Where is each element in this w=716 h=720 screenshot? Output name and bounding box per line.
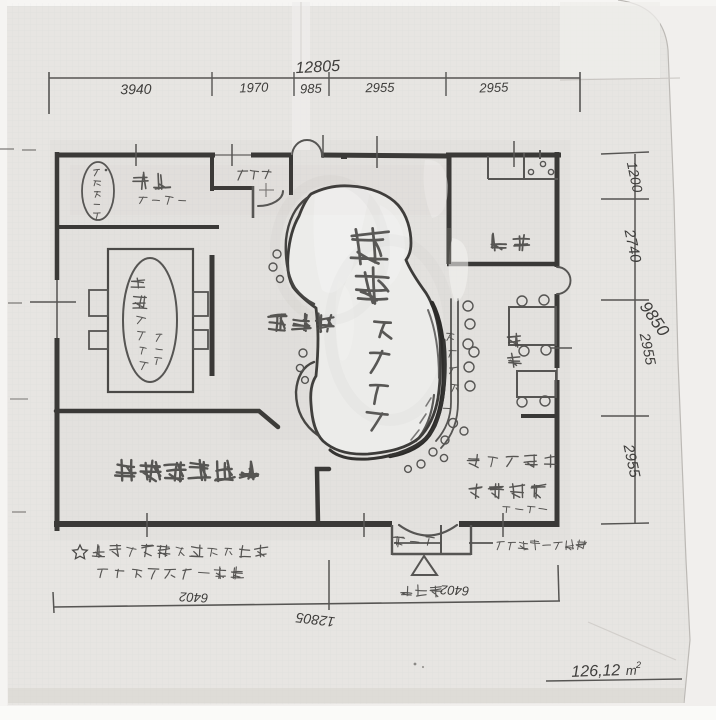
svg-text:2955: 2955 xyxy=(364,80,395,96)
svg-text:12805: 12805 xyxy=(295,58,340,77)
svg-text:126,12: 126,12 xyxy=(571,662,621,681)
svg-text:3940: 3940 xyxy=(120,81,152,98)
svg-text:1970: 1970 xyxy=(239,79,269,95)
svg-text:2: 2 xyxy=(635,660,641,670)
svg-text:6402: 6402 xyxy=(439,582,469,599)
svg-text:2955: 2955 xyxy=(478,79,509,95)
svg-text:6402: 6402 xyxy=(178,589,208,606)
svg-text:985: 985 xyxy=(300,81,323,97)
